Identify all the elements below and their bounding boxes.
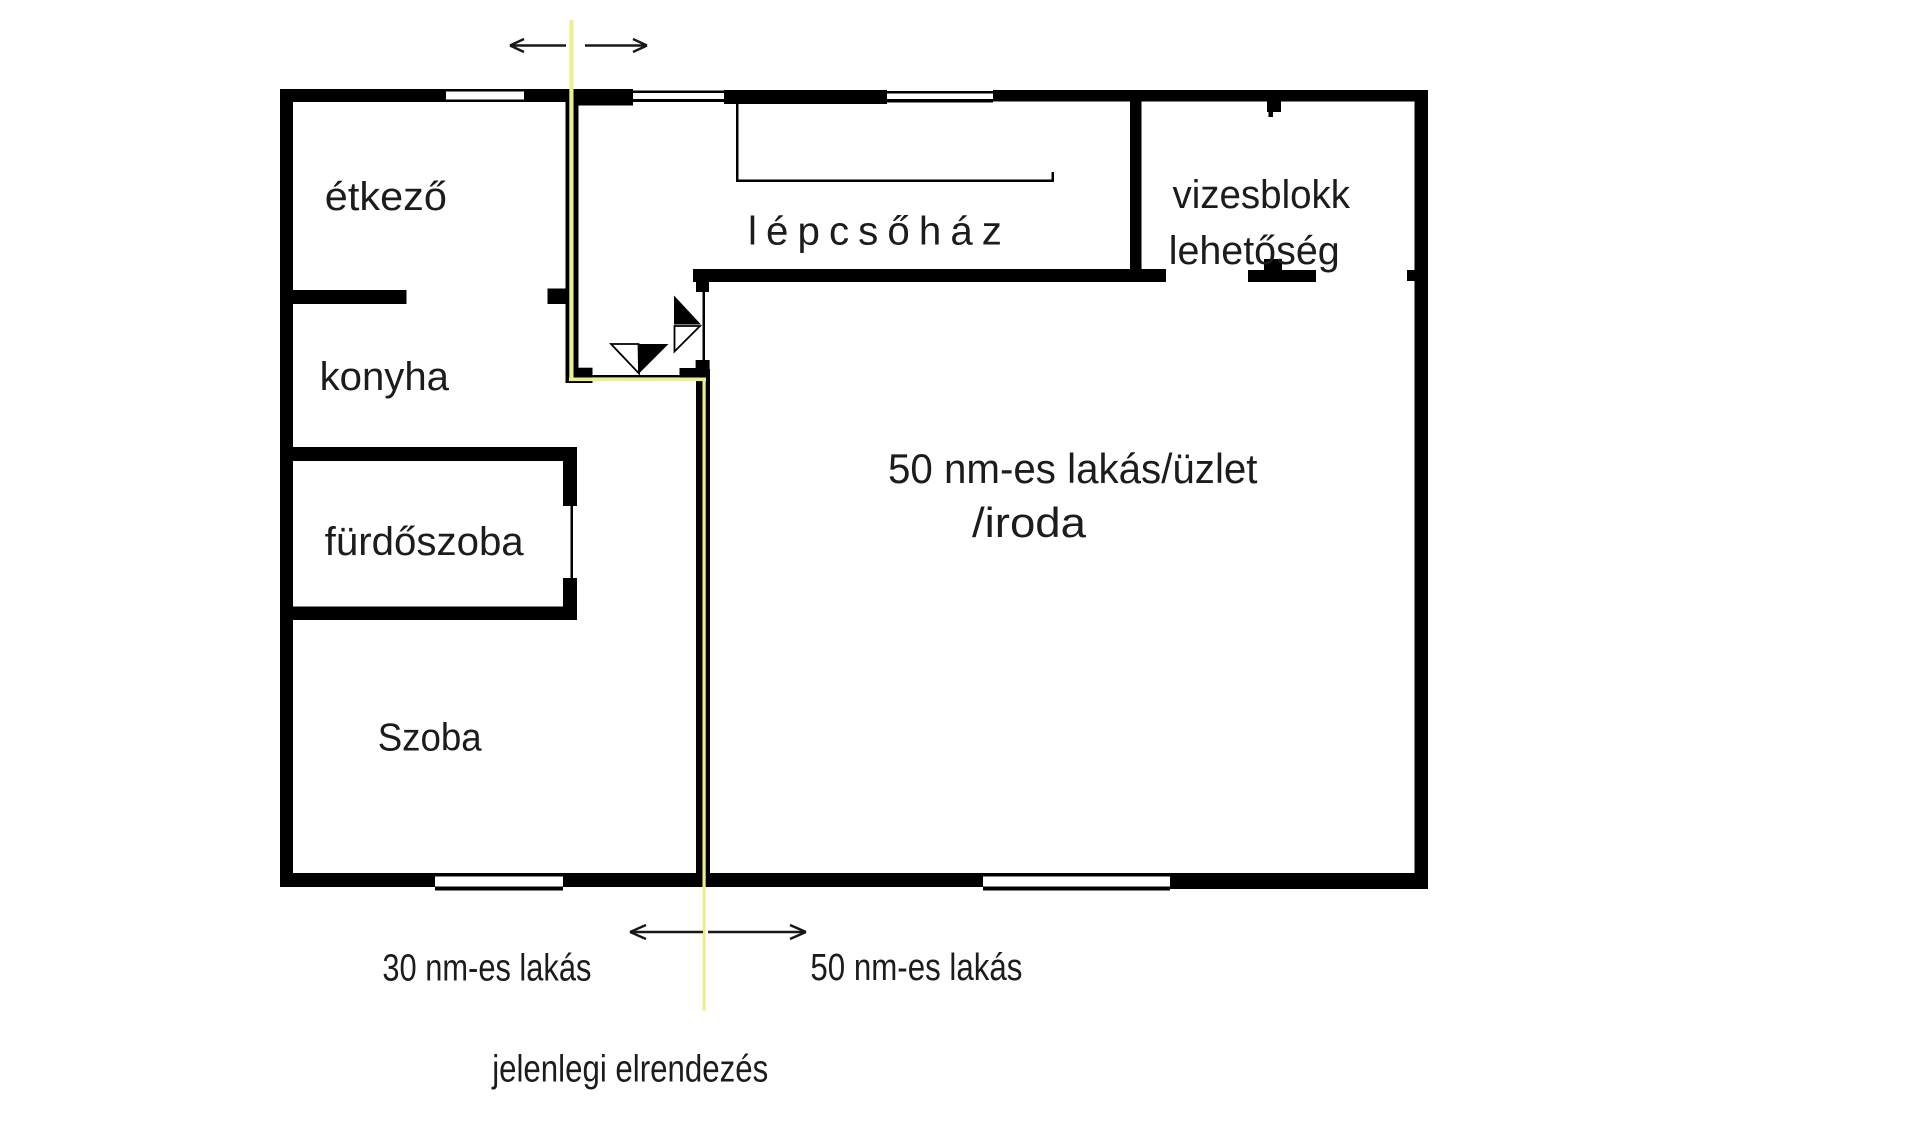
svg-text:50 nm-es lakás/üzlet: 50 nm-es lakás/üzlet: [888, 445, 1258, 492]
svg-text:jelenlegi elrendezés: jelenlegi elrendezés: [491, 1049, 768, 1091]
svg-text:vizesblokk: vizesblokk: [1173, 173, 1351, 217]
svg-text:konyha: konyha: [320, 355, 450, 399]
svg-text:étkező: étkező: [325, 175, 447, 219]
svg-text:30 nm-es lakás: 30 nm-es lakás: [382, 947, 591, 989]
svg-text:/iroda: /iroda: [972, 499, 1087, 546]
svg-text:lehetőség: lehetőség: [1169, 229, 1340, 273]
svg-text:50 nm-es lakás: 50 nm-es lakás: [810, 947, 1022, 989]
svg-text:Szoba: Szoba: [378, 717, 482, 760]
svg-text:lépcsőház: lépcsőház: [748, 210, 1011, 254]
svg-text:fürdőszoba: fürdőszoba: [325, 520, 525, 564]
